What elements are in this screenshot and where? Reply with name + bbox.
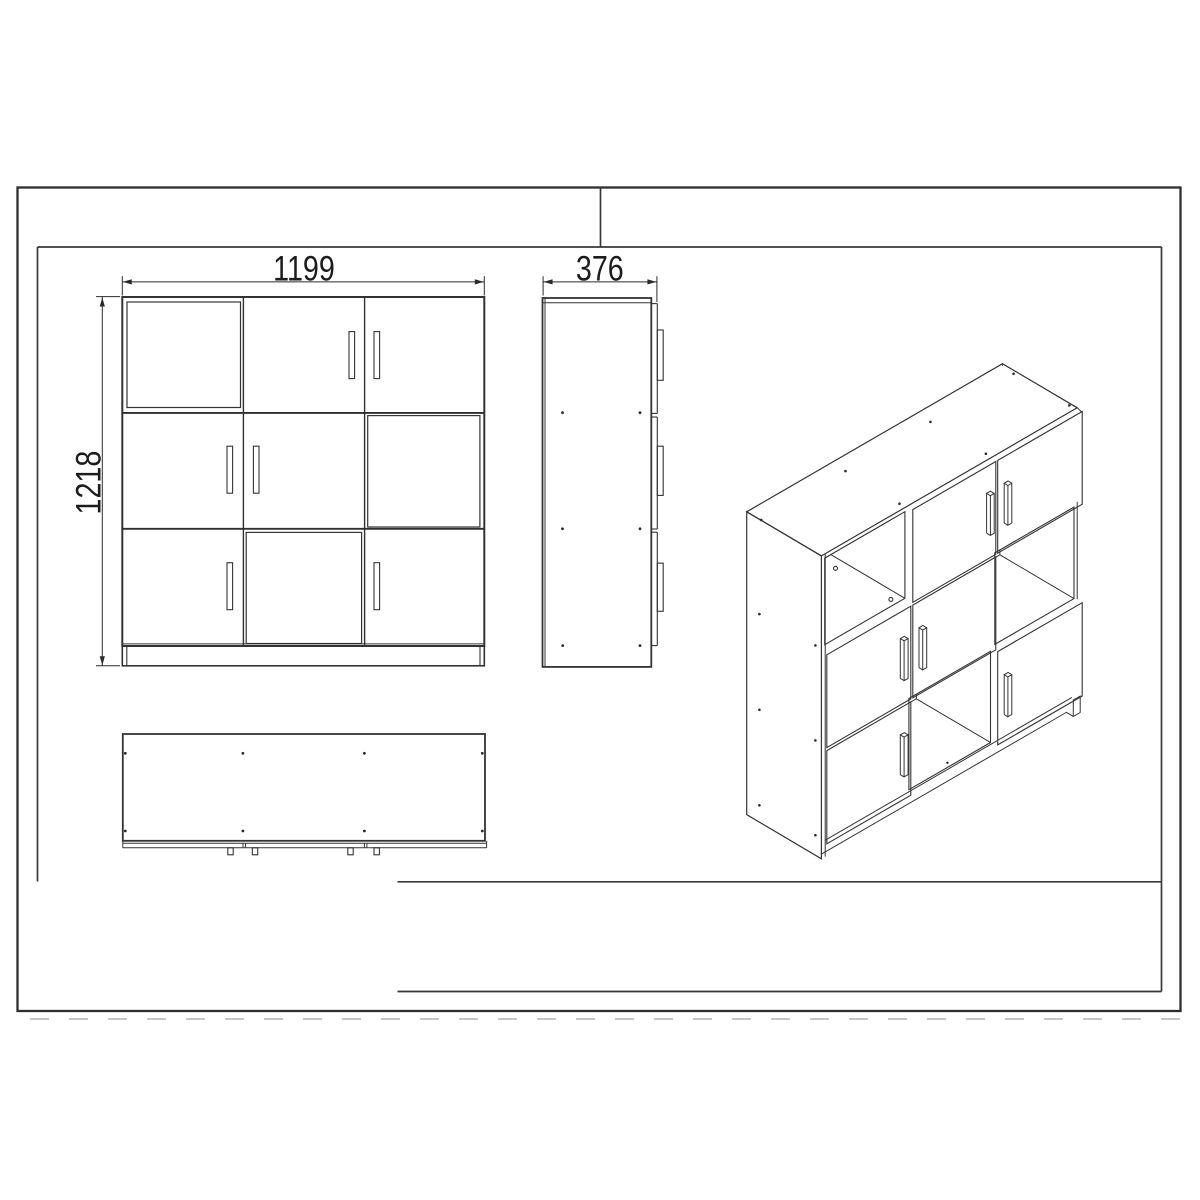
svg-text:376: 376 <box>576 249 624 288</box>
svg-text:1199: 1199 <box>273 249 335 288</box>
svg-text:1218: 1218 <box>69 451 108 515</box>
